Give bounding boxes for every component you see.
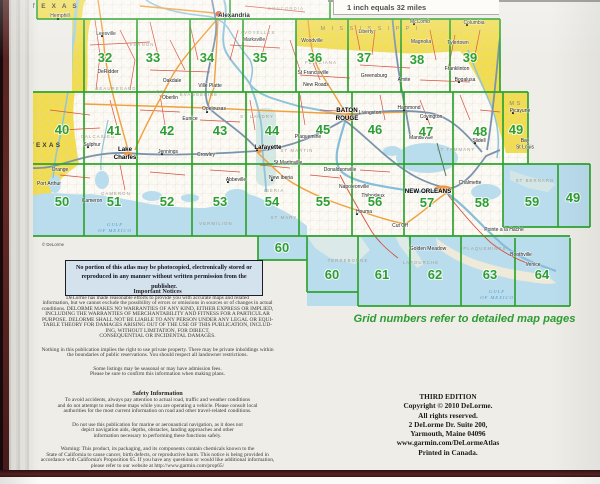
grid-page-number: 37 (357, 50, 371, 65)
city-label: Ville Platte (198, 83, 222, 89)
grid-page-number: 39 (463, 50, 477, 65)
city-label: Chalmette (459, 180, 482, 186)
legal-line: Please be sure to confirm this informati… (15, 372, 300, 377)
city-label: Eunice (182, 116, 198, 122)
grid-page-number: 43 (213, 123, 227, 138)
city-label: Magnolia (411, 39, 432, 45)
grid-page-number: 34 (200, 50, 215, 65)
city-label: Woodville (301, 38, 323, 44)
city-label: Hemphill (50, 13, 69, 19)
city-label: Crowley (197, 152, 216, 158)
notice-text: No portion of this atlas may be photocop… (76, 265, 252, 290)
city-label: Covington (420, 114, 443, 120)
atlas-index-page: T E X A STEXASM I S S I S S I P P IMSVER… (0, 0, 600, 484)
major-city-label: Alexandria (218, 12, 250, 19)
parish-label: BEAUREGARD (95, 86, 136, 91)
city-label: St Martinville (274, 160, 303, 166)
city-label: Cut Off (392, 223, 408, 229)
legal-paragraph: Nothing in this publication implies the … (15, 348, 300, 359)
legal-line: CONSEQUENTIAL OR INCIDENTAL DAMAGES. (15, 334, 300, 339)
city-label: New Roads (303, 82, 329, 88)
city-label: New Iberia (269, 175, 293, 181)
grid-note: Grid numbers refer to detailed map pages (352, 313, 577, 325)
city-label: Jennings (158, 149, 179, 155)
map-copyright: © DeLorme (42, 242, 65, 247)
parish-label: ST BERNARD (516, 178, 555, 183)
city-label: Golden Meadow (410, 246, 447, 252)
grid-page-number: 54 (265, 194, 280, 209)
city-label: Pointe a la Hache (484, 227, 524, 233)
legal-line: authorities for the most current informa… (15, 409, 300, 414)
city-label: Hammond (397, 105, 420, 111)
grid-page-number: 49 (509, 122, 523, 137)
parish-label: VERMILION (199, 221, 233, 226)
legal-paragraph: Do not use this publication for marine o… (15, 423, 300, 439)
edition-line: Copyright © 2010 DeLorme. (368, 401, 528, 410)
grid-page-number: 46 (368, 122, 382, 137)
major-city-label: BATONROUGE (336, 107, 359, 122)
parish-label: VERNON (130, 42, 155, 47)
city-label: Liberty (358, 29, 374, 35)
parish-label: ST LANDRY (240, 114, 274, 119)
grid-page-number: 60 (325, 267, 339, 282)
edition-block: THIRD EDITIONCopyright © 2010 DeLorme.Al… (368, 392, 528, 457)
grid-page-number: 64 (535, 267, 550, 282)
grid-page-number: 63 (483, 267, 497, 282)
legal-paragraph: To avoid accidents, always pay attention… (15, 398, 300, 414)
city-label: Opelousas (202, 106, 226, 112)
city-label: Marksville (243, 37, 265, 43)
legal-line: please refer to our website at http://ww… (15, 464, 300, 469)
edition-line: www.garmin.com/DeLormeAtlas (368, 438, 528, 447)
edition-line: 2 DeLorme Dr. Suite 200, (368, 420, 528, 429)
parish-label: EVANGELINE (180, 92, 218, 97)
city-label: Orange (52, 167, 69, 173)
grid-page-number: 56 (368, 194, 382, 209)
paper-below-edge (0, 477, 600, 484)
city-label: Picayune (510, 108, 531, 114)
parish-label: ST TAMMANY (437, 147, 476, 152)
grid-page-number: 33 (146, 50, 160, 65)
grid-page-number: 44 (265, 123, 280, 138)
major-city-label: NEW ORLEANS (405, 188, 451, 195)
grid-page-number: 32 (98, 50, 112, 65)
major-city-label: Lafayette (254, 144, 282, 151)
parish-label: ST MARY (271, 215, 298, 220)
important-notices-title: Important Notices (15, 288, 300, 295)
edition-line: Printed in Canada. (368, 448, 528, 457)
state-label: T E X A S (31, 3, 79, 10)
grid-page-number: 53 (213, 194, 227, 209)
parish-label: ST MARTIN (281, 148, 314, 153)
grid-page-number: 42 (160, 123, 174, 138)
parish-label: TERREBONNE (328, 258, 369, 263)
city-label: St Francisville (297, 70, 328, 76)
grid-page-number: 40 (55, 122, 69, 137)
city-label: Columbia (463, 20, 484, 26)
grid-page-number: 36 (308, 50, 322, 65)
city-label: Oakdale (163, 78, 182, 84)
grid-page-number: 48 (473, 124, 487, 139)
edition-line: All rights reserved. (368, 411, 528, 420)
city-label: Boothville (510, 252, 532, 258)
edition-line: THIRD EDITION (368, 392, 528, 401)
city-label: Donaldsonville (324, 167, 357, 173)
grid-page-number: 58 (475, 195, 489, 210)
grid-page-number: 55 (316, 194, 330, 209)
city-label: Bogalusa (455, 77, 476, 83)
city-label: Abbeville (226, 177, 247, 183)
parish-label: AVOYELLES (241, 30, 276, 35)
edition-line: Yarmouth, Maine 04096 (368, 429, 528, 438)
grid-page-number: 57 (420, 195, 434, 210)
city-label: Leesville (96, 31, 116, 37)
legal-paragraph: Warning: This product, its packaging, an… (15, 447, 300, 469)
grid-page-number: 38 (410, 52, 424, 67)
city-label: Cameron (82, 198, 103, 204)
scale-label: 1 inch equals 32 miles (347, 3, 426, 12)
grid-page-number: 35 (253, 50, 267, 65)
scale-note: 1 inch equals 32 miles (333, 0, 499, 15)
parish-label: LAFOURCHE (403, 260, 439, 265)
city-label: Oberlin (162, 95, 178, 101)
city-label: Napoleonville (339, 184, 369, 190)
city-label: Tylertown (447, 40, 469, 46)
parish-label: CONCORDIA (268, 6, 304, 11)
grid-page-number: 60 (275, 240, 289, 255)
legal-line: the boundaries of public reservations. Y… (15, 353, 300, 358)
city-label: Franklinton (445, 66, 470, 72)
grid-page-number: 50 (55, 194, 69, 209)
grid-page-number: 49 (566, 190, 580, 205)
city-label: Amite (398, 77, 411, 83)
city-label: DeRidder (97, 69, 118, 75)
grid-page-number: 59 (525, 194, 539, 209)
grid-page-number: 41 (107, 123, 121, 138)
grid-page-number: 52 (160, 194, 174, 209)
legal-paragraph: Some listings may be seasonal or may hav… (15, 367, 300, 378)
grid-page-number: 47 (419, 124, 433, 139)
state-label: MS (509, 101, 522, 107)
state-label: TEXAS (30, 142, 62, 149)
city-label: Livingston (359, 110, 382, 116)
city-label: Sulphur (83, 142, 101, 148)
legal-paragraph: DeLorme has made reasonable efforts to p… (15, 296, 300, 340)
grid-page-number: 45 (316, 122, 330, 137)
grid-page-number: 61 (375, 267, 389, 282)
legal-column: Important Notices DeLorme has made reaso… (15, 288, 300, 477)
legal-line: information necessary to performing thes… (15, 434, 300, 439)
parish-label: IBERIA (264, 188, 285, 193)
city-label: Port Arthur (37, 181, 61, 187)
city-label: Houma (356, 209, 372, 215)
grid-page-number: 62 (428, 267, 442, 282)
parish-label: ALLEN (145, 89, 164, 94)
grid-page-number: 51 (107, 194, 121, 209)
city-label: McComb (410, 19, 430, 25)
city-label: Greensburg (361, 73, 388, 79)
parish-label: PLAQUEMINES (463, 246, 506, 251)
